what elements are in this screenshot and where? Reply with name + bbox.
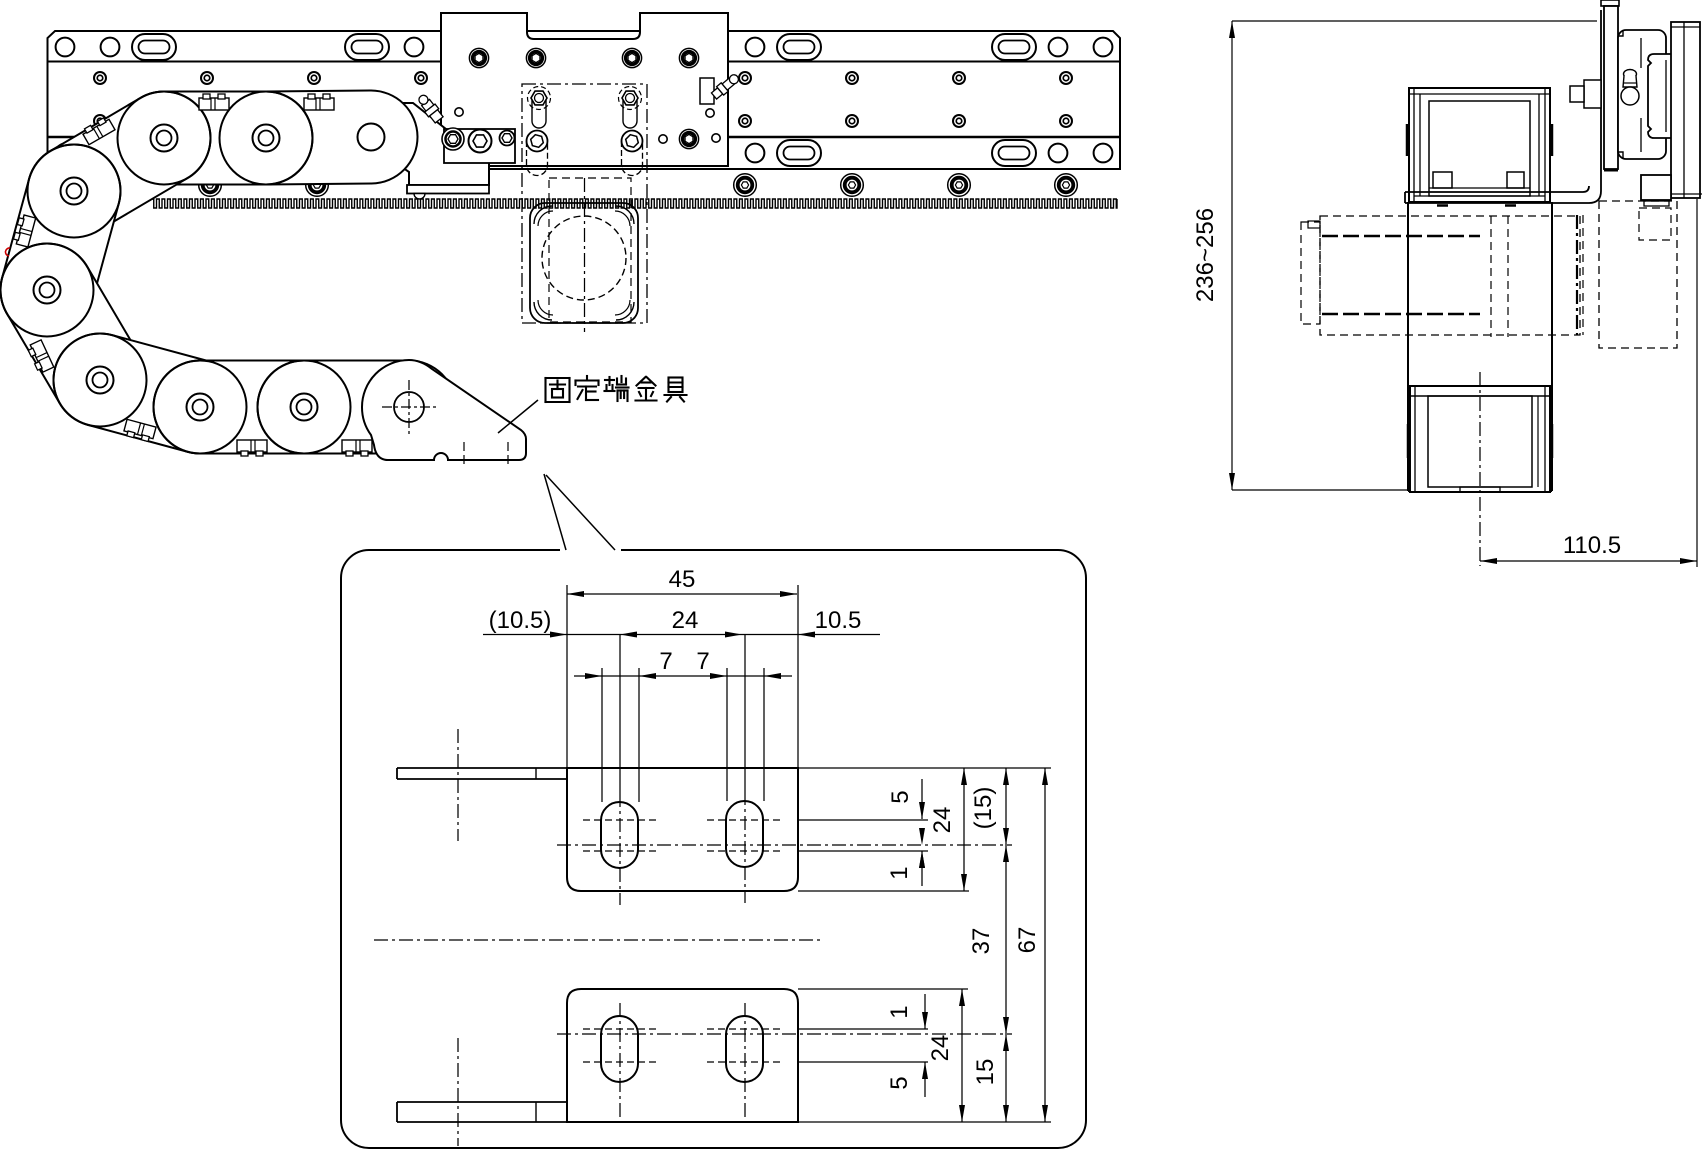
svg-text:236~256: 236~256 xyxy=(1192,208,1219,302)
svg-text:(10.5): (10.5) xyxy=(489,607,552,634)
svg-text:37: 37 xyxy=(968,928,995,955)
svg-text:5: 5 xyxy=(886,1076,913,1089)
svg-text:7: 7 xyxy=(696,648,709,675)
svg-text:5: 5 xyxy=(887,790,914,803)
svg-text:45: 45 xyxy=(669,566,696,593)
svg-text:24: 24 xyxy=(927,1035,954,1062)
svg-text:1: 1 xyxy=(886,1005,913,1018)
svg-text:1: 1 xyxy=(886,866,913,879)
svg-text:24: 24 xyxy=(929,807,956,834)
svg-text:24: 24 xyxy=(672,607,699,634)
svg-text:15: 15 xyxy=(972,1059,999,1086)
svg-text:110.5: 110.5 xyxy=(1563,532,1621,559)
svg-text:10.5: 10.5 xyxy=(815,607,862,634)
svg-text:(15): (15) xyxy=(970,787,997,830)
svg-text:7: 7 xyxy=(659,648,672,675)
svg-text:67: 67 xyxy=(1014,927,1041,954)
